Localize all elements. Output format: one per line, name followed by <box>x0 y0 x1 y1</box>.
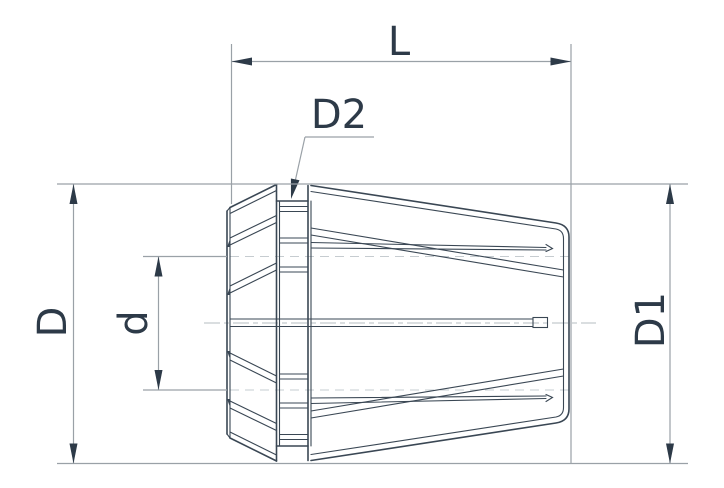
drawing-canvas: L D2 D d D1 <box>0 0 724 488</box>
label-groove-diameter: D2 <box>311 92 367 138</box>
collet-technical-drawing: L D2 D d D1 <box>0 0 724 488</box>
label-outer-diameter: D <box>30 307 76 338</box>
label-body-diameter: D1 <box>628 292 674 348</box>
dimension-groove-D2: D2 <box>291 92 374 199</box>
label-length: L <box>388 19 411 65</box>
dimension-body-D1: D1 <box>628 184 674 464</box>
label-bore-diameter: d <box>111 310 157 335</box>
dimension-outer-D: D <box>30 184 78 464</box>
